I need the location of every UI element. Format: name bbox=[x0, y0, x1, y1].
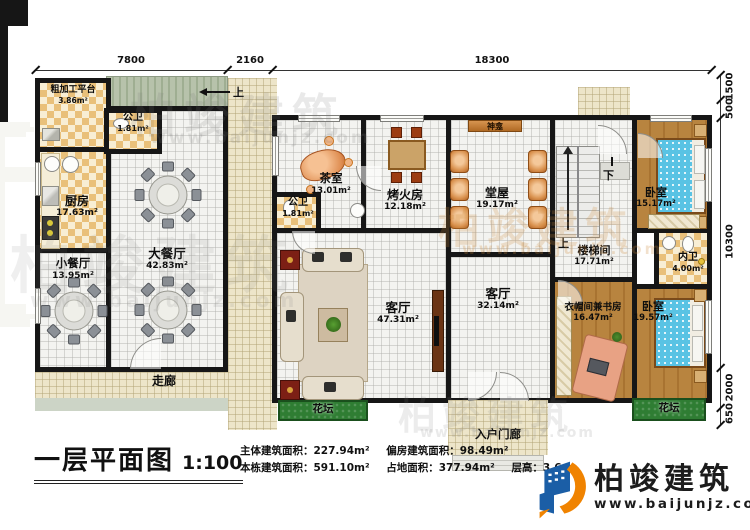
wall-opening bbox=[0, 204, 5, 226]
bed-pillow bbox=[694, 145, 705, 174]
dining-table-icon bbox=[37, 274, 111, 348]
hall-armchair bbox=[450, 150, 469, 173]
wardrobe bbox=[648, 214, 700, 229]
dimension-line-right bbox=[720, 75, 721, 425]
stair-direction-line bbox=[567, 152, 569, 230]
dim-label-7800: 7800 bbox=[101, 55, 161, 66]
toilet bbox=[283, 200, 295, 216]
washbasin bbox=[113, 118, 129, 129]
logo-text: 柏竣建筑 www.baijunjz.com bbox=[594, 464, 750, 512]
courtyard-area bbox=[228, 78, 277, 430]
dim-label-18300: 18300 bbox=[460, 55, 524, 66]
window bbox=[705, 300, 712, 354]
window bbox=[298, 115, 340, 122]
table-plant bbox=[326, 317, 341, 332]
wall-opening bbox=[0, 319, 30, 327]
up-marker-stairs: 上 bbox=[558, 235, 569, 251]
shrine-label: 神龛 bbox=[469, 121, 521, 132]
page-title: 一层平面图 bbox=[34, 446, 174, 476]
stair-rail bbox=[577, 146, 579, 238]
platform-sink bbox=[42, 128, 60, 141]
floor-plan: 神龛 粗加工平台 3.86m² bbox=[0, 0, 750, 530]
dim-label-10300: 10300 bbox=[725, 218, 736, 266]
bed-mattress bbox=[658, 140, 692, 212]
up-marker-roof: 上 bbox=[233, 84, 244, 100]
window bbox=[650, 115, 692, 122]
window bbox=[705, 148, 712, 202]
fire-chair bbox=[391, 172, 402, 183]
wall-opening bbox=[0, 280, 5, 304]
corridor-edge-strip bbox=[35, 398, 228, 411]
room-bath-left bbox=[104, 108, 162, 154]
stat-footprint-area: 占地面积：377.94m² bbox=[386, 462, 495, 474]
kitchen-basin bbox=[62, 156, 79, 173]
closet bbox=[556, 296, 572, 396]
down-marker-stairs: 下 bbox=[603, 167, 614, 183]
window bbox=[272, 136, 279, 176]
logo-website: www.baijunjz.com bbox=[594, 496, 750, 512]
stat-main-area: 主体建筑面积：227.94m² bbox=[240, 445, 370, 457]
title-block: 一层平面图1:100 bbox=[34, 440, 243, 484]
porch-wall-right bbox=[0, 74, 8, 122]
corridor-floor bbox=[35, 372, 228, 398]
sink bbox=[662, 236, 676, 250]
sofa-left bbox=[280, 292, 304, 362]
wall-opening bbox=[0, 182, 5, 204]
kitchen-sink bbox=[42, 186, 59, 206]
dim-label-500: 500 bbox=[725, 89, 736, 129]
fire-chair bbox=[411, 172, 422, 183]
plan-scale: 1:100 bbox=[182, 452, 242, 474]
toilet bbox=[682, 236, 694, 252]
bed-mattress bbox=[656, 300, 690, 366]
wall-opening bbox=[0, 226, 5, 252]
water-heater bbox=[698, 258, 705, 265]
sofa-cushion bbox=[324, 382, 336, 392]
side-table bbox=[280, 250, 300, 270]
hall-armchair bbox=[528, 206, 547, 229]
up-arrow-head bbox=[199, 88, 207, 96]
bed-pillow bbox=[694, 180, 705, 209]
dining-table-icon bbox=[131, 158, 205, 232]
bed-pillow bbox=[692, 305, 703, 331]
dim-label-650: 650 bbox=[725, 394, 736, 434]
fire-chair bbox=[411, 127, 422, 138]
stat-annex-area: 偏房建筑面积：98.49m² bbox=[386, 445, 508, 457]
down-tick bbox=[611, 157, 613, 166]
area-stats: 主体建筑面积：227.94m² 偏房建筑面积：98.49m² 本栋建筑面积：59… bbox=[240, 443, 585, 477]
bed bbox=[656, 138, 706, 214]
flowerbed-left bbox=[278, 400, 368, 421]
porch-wall-left bbox=[0, 26, 8, 74]
chimney-flue bbox=[16, 139, 27, 149]
tea-stone-small bbox=[306, 185, 315, 194]
window bbox=[35, 162, 41, 196]
sofa-cushion bbox=[340, 252, 352, 262]
stats-row-1: 主体建筑面积：227.94m² 偏房建筑面积：98.49m² bbox=[240, 443, 585, 460]
stair-exterior-landing bbox=[578, 87, 630, 117]
wall-opening bbox=[0, 177, 40, 182]
logo-company-name: 柏竣建筑 bbox=[594, 464, 750, 496]
dimension-line-top bbox=[35, 70, 712, 71]
dim-label-2160: 2160 bbox=[220, 55, 280, 66]
sofa-cushion bbox=[286, 310, 296, 322]
tea-stone-small bbox=[344, 158, 353, 167]
bed-pillow bbox=[692, 336, 703, 362]
fire-table bbox=[388, 140, 426, 170]
dining-table-icon bbox=[131, 273, 205, 347]
flowerbed-right bbox=[632, 398, 706, 421]
window bbox=[380, 115, 424, 122]
stair-direction-arrowhead bbox=[563, 146, 573, 154]
hall-armchair bbox=[528, 150, 547, 173]
up-arrow-line bbox=[206, 91, 230, 93]
stats-row-2: 本栋建筑面积：591.10m² 占地面积：377.94m² 层高：3.6m bbox=[240, 460, 585, 477]
desk-plant bbox=[612, 332, 622, 342]
hall-armchair bbox=[528, 178, 547, 201]
company-logo: 柏竣建筑 www.baijunjz.com bbox=[538, 456, 750, 520]
wall-opening bbox=[0, 137, 5, 167]
stove-burner bbox=[47, 220, 53, 226]
tv bbox=[434, 316, 439, 346]
fire-chair bbox=[391, 127, 402, 138]
nightstand bbox=[694, 370, 707, 383]
hall-armchair bbox=[450, 178, 469, 201]
wall-opening bbox=[0, 252, 5, 280]
window bbox=[35, 288, 41, 324]
stove-burner bbox=[47, 230, 53, 236]
pedestal-basin bbox=[350, 203, 365, 218]
nightstand bbox=[694, 124, 707, 137]
tea-stone-small bbox=[324, 136, 334, 146]
side-table bbox=[280, 380, 300, 400]
stat-total-area: 本栋建筑面积：591.10m² bbox=[240, 462, 370, 474]
hall-armchair bbox=[450, 206, 469, 229]
logo-building-icon bbox=[538, 456, 586, 520]
shrine-bar: 神龛 bbox=[468, 120, 522, 132]
chimney bbox=[0, 0, 28, 26]
room-bath-main bbox=[272, 192, 321, 233]
bed bbox=[654, 298, 706, 368]
kitchen-basin bbox=[44, 156, 60, 172]
